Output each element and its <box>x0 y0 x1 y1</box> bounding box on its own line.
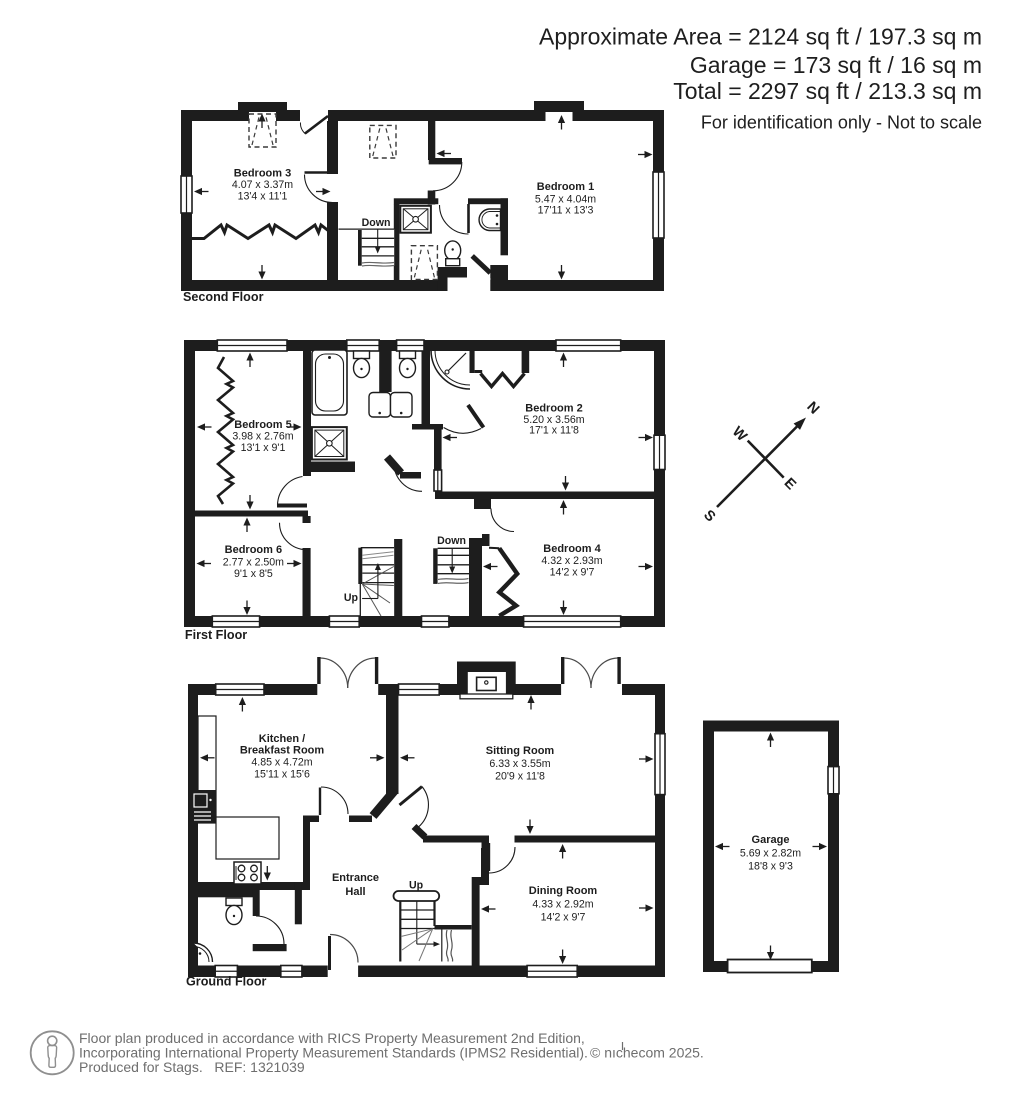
svg-text:Bedroom 4: Bedroom 4 <box>543 543 601 555</box>
svg-text:9'1 x 8'5: 9'1 x 8'5 <box>234 568 273 580</box>
svg-text:Sitting Room: Sitting Room <box>486 745 555 757</box>
svg-text:17'1 x 11'8: 17'1 x 11'8 <box>529 425 579 437</box>
svg-text:Hall: Hall <box>345 886 365 898</box>
svg-text:20'9 x 11'8: 20'9 x 11'8 <box>495 771 545 783</box>
svg-text:4.32 x 2.93m: 4.32 x 2.93m <box>541 555 602 567</box>
svg-text:Bedroom 5: Bedroom 5 <box>234 419 291 431</box>
svg-text:Kitchen /: Kitchen / <box>259 733 305 745</box>
svg-text:First Floor: First Floor <box>185 628 247 642</box>
svg-text:For identification only - Not: For identification only - Not to scale <box>701 113 982 133</box>
svg-text:6.33 x 3.55m: 6.33 x 3.55m <box>489 758 550 770</box>
svg-text:4.85 x 4.72m: 4.85 x 4.72m <box>251 757 312 769</box>
svg-text:Breakfast Room: Breakfast Room <box>240 745 325 757</box>
svg-text:17'11 x 13'3: 17'11 x 13'3 <box>538 205 594 217</box>
svg-text:5.69 x 2.82m: 5.69 x 2.82m <box>740 848 801 860</box>
svg-text:Up: Up <box>409 880 424 892</box>
svg-text:Bedroom 1: Bedroom 1 <box>537 181 594 193</box>
svg-text:Approximate Area = 2124 sq ft: Approximate Area = 2124 sq ft / 197.3 sq… <box>539 24 982 50</box>
svg-text:Produced for Stags. REF: 132: Produced for Stags. REF: 1321039 <box>79 1059 305 1075</box>
svg-text:Bedroom 3: Bedroom 3 <box>234 168 291 180</box>
svg-text:14'2 x 9'7: 14'2 x 9'7 <box>541 912 586 924</box>
svg-text:13'4 x 11'1: 13'4 x 11'1 <box>238 191 288 203</box>
svg-text:Dining Room: Dining Room <box>529 885 598 897</box>
svg-text:13'1 x 9'1: 13'1 x 9'1 <box>241 442 286 454</box>
svg-text:14'2 x 9'7: 14'2 x 9'7 <box>550 567 595 579</box>
svg-text:Down: Down <box>362 217 391 229</box>
svg-text:18'8 x 9'3: 18'8 x 9'3 <box>748 861 793 873</box>
svg-text:4.33 x 2.92m: 4.33 x 2.92m <box>532 899 593 911</box>
svg-text:2.77 x 2.50m: 2.77 x 2.50m <box>223 557 284 569</box>
svg-text:Bedroom 2: Bedroom 2 <box>525 403 582 415</box>
svg-text:Entrance: Entrance <box>332 872 379 884</box>
svg-text:Bedroom 6: Bedroom 6 <box>225 544 282 556</box>
svg-text:© nıchecom 2025.: © nıchecom 2025. <box>590 1045 704 1061</box>
svg-text:15'11 x 15'6: 15'11 x 15'6 <box>254 769 310 781</box>
svg-text:4.07 x 3.37m: 4.07 x 3.37m <box>232 179 293 191</box>
svg-text:Garage = 173 sq ft / 16 sq m: Garage = 173 sq ft / 16 sq m <box>690 52 982 78</box>
svg-text:Ground Floor: Ground Floor <box>186 975 267 989</box>
svg-text:3.98 x 2.76m: 3.98 x 2.76m <box>232 431 293 443</box>
svg-text:Garage: Garage <box>752 834 790 846</box>
svg-text:Total = 2297 sq ft / 213.3 sq: Total = 2297 sq ft / 213.3 sq m <box>673 78 982 104</box>
svg-text:Up: Up <box>344 592 359 604</box>
svg-text:Second Floor: Second Floor <box>183 290 264 304</box>
svg-text:Down: Down <box>437 535 466 547</box>
